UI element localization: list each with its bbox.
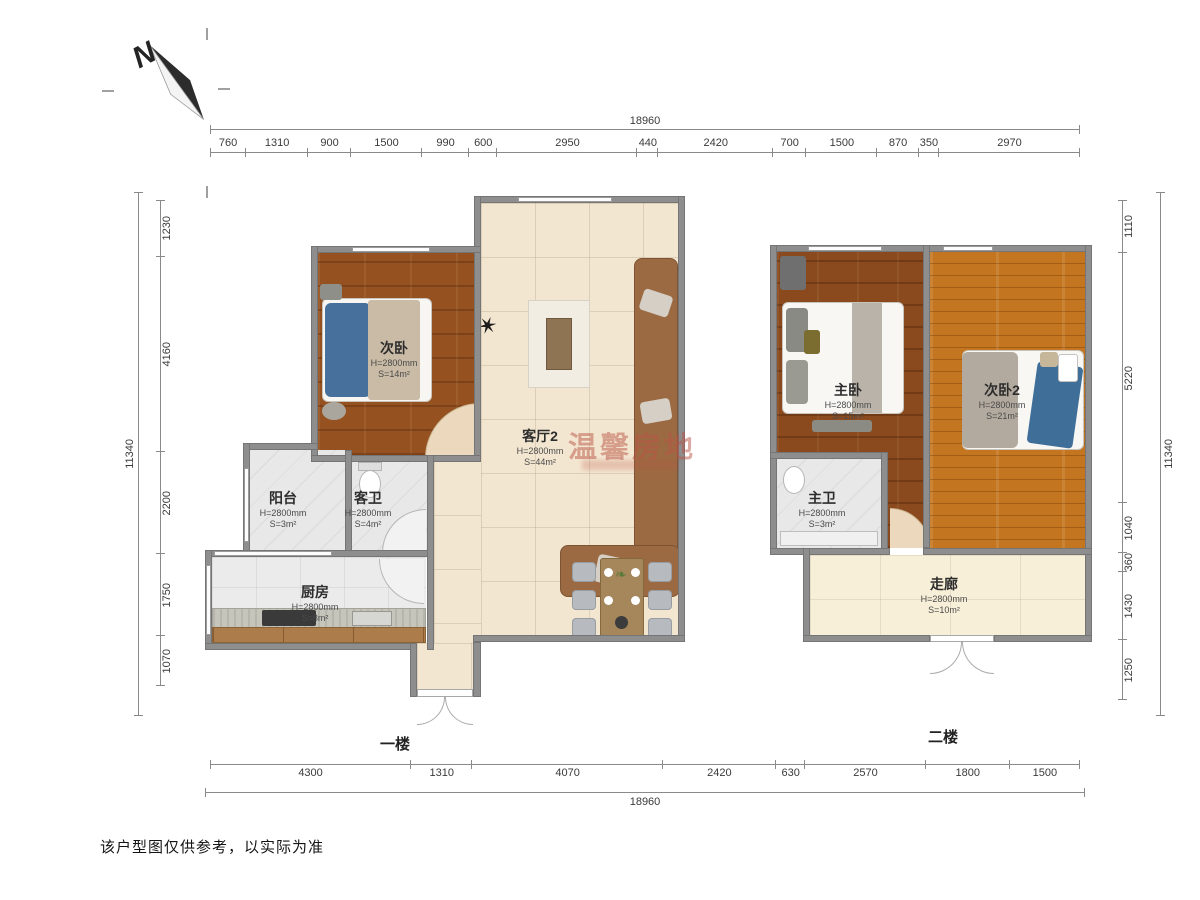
wall [205,643,417,650]
floor2-label: 二楼 [928,726,958,747]
room-height: H=2800mm [884,594,1004,606]
dim-segment: 1500 [1010,765,1080,783]
wall [678,196,685,642]
dim-segment: 1310 [246,134,308,152]
room-label-corridor: 走廊 H=2800mm S=10m² [884,576,1004,617]
room-label-master: 主卧 H=2800mm S=15m² [788,382,908,423]
dim-segment: 1430 [1123,572,1149,641]
room-area: S=14m² [334,369,454,381]
dim-segment: 2970 [939,134,1080,152]
dim-segment: 4300 [210,765,411,783]
room-label-kitchen: 厨房 H=2800mm S=8m² [255,584,375,625]
window [214,551,332,556]
watermark-subline [582,460,678,470]
dim-segment: 1250 [1123,640,1149,700]
dim-segment: 1800 [926,765,1010,783]
dim-segment: 4160 [161,257,187,451]
registration-mark [102,90,114,92]
dim-segment: 2420 [663,765,776,783]
dining-chair [572,590,596,610]
flower-icon: ❧ [612,566,630,582]
floor1-label: 一楼 [380,733,410,754]
dim-segment: 2570 [805,765,925,783]
plate [631,568,640,577]
corridor-door [930,635,994,642]
room-area: S=10m² [884,605,1004,617]
dim-segment: 630 [776,765,805,783]
dim-segment: 900 [308,134,351,152]
dim-segment: 5220 [1123,253,1149,503]
dining-chair [648,590,672,610]
dim-segment: 990 [422,134,469,152]
room-name: 次卧2 [942,382,1062,400]
kitchen-cabinets [212,627,426,643]
wall [473,642,481,697]
registration-mark [206,186,208,198]
room-name: 走廊 [884,576,1004,594]
dresser [780,256,806,290]
nightstand [320,284,342,300]
room-height: H=2800mm [255,602,375,614]
dim-segment: 1040 [1123,503,1149,553]
room-label-bedroom2: 次卧2 H=2800mm S=21m² [942,382,1062,423]
window [808,246,882,251]
dim-segment: 1070 [161,636,187,686]
dim-segment: 360 [1123,553,1149,571]
dim-segment: 1500 [806,134,877,152]
wall [474,196,481,462]
wall [1085,245,1092,642]
corridor-door-leaf-arc [962,642,994,674]
wall [311,246,318,462]
dim-segment: 600 [469,134,497,152]
room-name: 客卫 [318,490,418,508]
wall [923,548,1092,555]
dim-bottom-total-value: 18960 [630,796,661,808]
window [352,247,430,252]
dim-top-total-value: 18960 [630,115,661,127]
room-label-bath2: 主卫 H=2800mm S=3m² [772,490,872,531]
dim-segment: 700 [773,134,806,152]
entry-door-leaf-arc [417,697,445,725]
dim-segment: 1110 [1123,200,1149,253]
dim-left-total: 11340 [112,192,139,716]
dim-segment: 1230 [161,200,187,257]
room-label-bedroom1: 次卧 H=2800mm S=14m² [334,340,454,381]
plate [604,596,613,605]
wall [803,635,930,642]
room-height: H=2800mm [772,508,872,520]
dim-bottom-segments: 4300131040702420630257018001500 [210,764,1080,783]
dim-right-total-value: 11340 [1163,439,1175,469]
room-height: H=2800mm [334,358,454,370]
wall [770,452,888,459]
dim-segment: 760 [210,134,246,152]
dim-top-total: 18960 [210,110,1080,130]
room-area: S=3m² [772,519,872,531]
floorplan-canvas: N 18960 76013109001500990600295044024207… [0,0,1200,900]
wall [803,548,810,642]
coffee-table [546,318,572,370]
dim-segment: 870 [877,134,918,152]
wall [311,455,481,462]
dim-left-segments: 12304160220017501070 [160,200,187,686]
wall [473,635,685,642]
window [518,197,612,202]
wall [243,443,318,450]
wall [923,245,930,548]
dim-segment: 2950 [497,134,637,152]
corridor-door-leaf-arc [930,642,962,674]
dim-segment: 1500 [351,134,422,152]
dim-segment: 350 [919,134,939,152]
entry-door [417,689,473,697]
window [206,565,211,635]
bed-bedroom2-pillow [1040,352,1058,367]
compass-north-icon: N [126,26,230,132]
vanity [780,531,878,546]
room-name: 主卧 [788,382,908,400]
room-height: H=2800mm [788,400,908,412]
entry-door-leaf-arc [445,697,473,725]
room-area: S=8m² [255,613,375,625]
dim-right-total: 11340 [1160,192,1187,716]
bed-bedroom2-pillow [1058,354,1078,382]
dining-chair [648,562,672,582]
wall [410,643,417,697]
wall [770,548,890,555]
dim-segment: 440 [637,134,658,152]
dim-segment: 2200 [161,452,187,555]
wall [427,455,434,650]
bed-master-throw [804,330,820,354]
room-name: 主卫 [772,490,872,508]
dim-segment: 2420 [658,134,773,152]
window [943,246,993,251]
dim-segment: 4070 [472,765,662,783]
wall [881,452,888,555]
room-area: S=15m² [788,411,908,423]
dim-right-segments: 11105220104036014301250 [1122,200,1149,700]
room-name: 厨房 [255,584,375,602]
plate [631,596,640,605]
dim-segment: 1750 [161,554,187,636]
room-name: 次卧 [334,340,454,358]
room-height: H=2800mm [942,400,1062,412]
room-label-bath1: 客卫 H=2800mm S=4m² [318,490,418,531]
dining-chair [572,562,596,582]
room-area: S=4m² [318,519,418,531]
bowl [615,616,628,629]
entry-vestibule-floor [417,643,473,691]
room-height: H=2800mm [318,508,418,520]
dim-segment: 1310 [411,765,472,783]
room-area: S=21m² [942,411,1062,423]
dim-left-total-value: 11340 [124,439,136,469]
room-living-floor-ext [434,461,481,643]
dim-top-segments: 7601310900150099060029504402420700150087… [210,134,1080,153]
dim-bottom-total: 18960 [205,792,1085,812]
disclaimer-note: 该户型图仅供参考，以实际为准 [100,836,324,857]
pouf [322,402,346,420]
wall [994,635,1092,642]
